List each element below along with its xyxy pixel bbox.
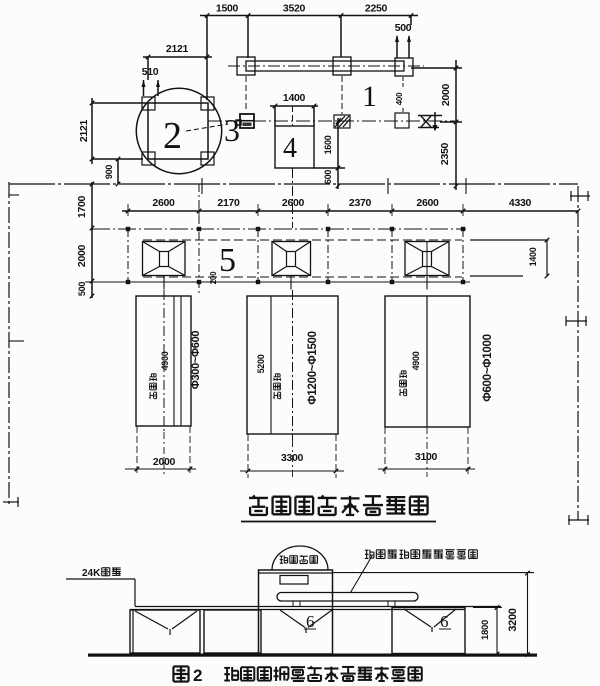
svg-text:6: 6	[440, 612, 449, 631]
svg-text:3200: 3200	[507, 608, 519, 631]
svg-text:1: 1	[362, 80, 377, 113]
svg-text:2600: 2600	[152, 197, 175, 209]
svg-text:1400: 1400	[528, 247, 538, 266]
svg-text:900: 900	[104, 165, 114, 179]
svg-text:4900: 4900	[160, 351, 170, 370]
svg-text:Φ1200~Φ1500: Φ1200~Φ1500	[307, 331, 319, 404]
svg-text:5200: 5200	[256, 354, 266, 373]
svg-text:Φ600~Φ1000: Φ600~Φ1000	[482, 334, 494, 401]
svg-text:24K: 24K	[82, 568, 101, 579]
svg-text:5: 5	[219, 242, 236, 279]
svg-text:2: 2	[163, 115, 182, 157]
svg-text:3520: 3520	[283, 3, 306, 15]
svg-text:510: 510	[142, 66, 159, 78]
svg-text:2000: 2000	[440, 83, 452, 106]
svg-text:4330: 4330	[509, 197, 532, 209]
svg-text:2000: 2000	[153, 456, 176, 468]
svg-text:6: 6	[306, 612, 315, 631]
svg-text:1700: 1700	[76, 195, 88, 218]
svg-text:2000: 2000	[76, 244, 88, 267]
svg-text:1600: 1600	[323, 135, 333, 154]
svg-text:Φ300~Φ600: Φ300~Φ600	[190, 331, 202, 390]
svg-text:2121: 2121	[166, 43, 189, 55]
svg-text:2121: 2121	[78, 119, 90, 142]
svg-text:1400: 1400	[283, 92, 306, 104]
svg-text:2170: 2170	[217, 197, 240, 209]
svg-text:4900: 4900	[411, 351, 421, 370]
svg-text:3: 3	[224, 112, 240, 148]
svg-text:3300: 3300	[281, 452, 304, 464]
svg-text:1500: 1500	[216, 3, 239, 15]
svg-text:2350: 2350	[439, 142, 451, 165]
svg-text:1800: 1800	[480, 620, 491, 640]
svg-text:600: 600	[323, 170, 333, 184]
svg-text:500: 500	[77, 282, 87, 296]
svg-text:2600: 2600	[282, 197, 305, 209]
svg-text:2370: 2370	[349, 197, 372, 209]
svg-text:200: 200	[209, 271, 218, 284]
svg-text:2250: 2250	[365, 3, 388, 15]
svg-text:500: 500	[395, 22, 412, 34]
svg-text:400: 400	[395, 92, 404, 105]
svg-text:2600: 2600	[416, 197, 439, 209]
svg-text:2: 2	[193, 666, 202, 685]
svg-text:4: 4	[283, 133, 297, 164]
svg-text:3100: 3100	[415, 451, 438, 463]
